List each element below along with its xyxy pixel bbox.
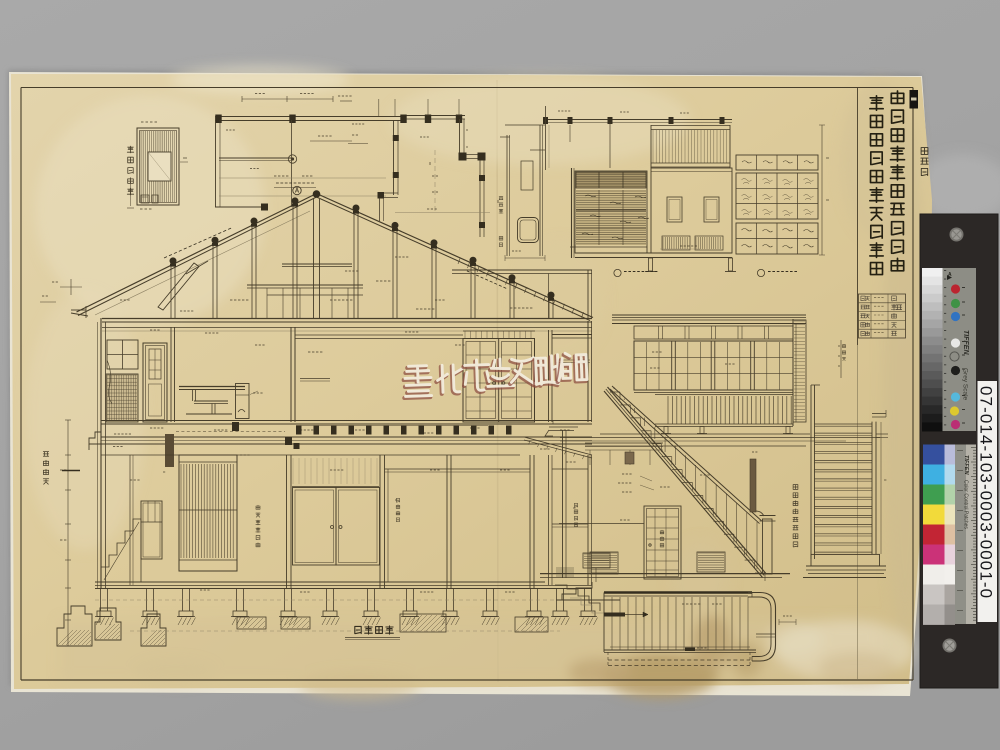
svg-text:TIFFEN: TIFFEN <box>963 455 969 476</box>
svg-text:TIFFEN: TIFFEN <box>962 330 969 355</box>
svg-text:Color Control Patches: Color Control Patches <box>963 480 969 529</box>
svg-text:07-014-103-0003-0001-0: 07-014-103-0003-0001-0 <box>977 386 996 599</box>
